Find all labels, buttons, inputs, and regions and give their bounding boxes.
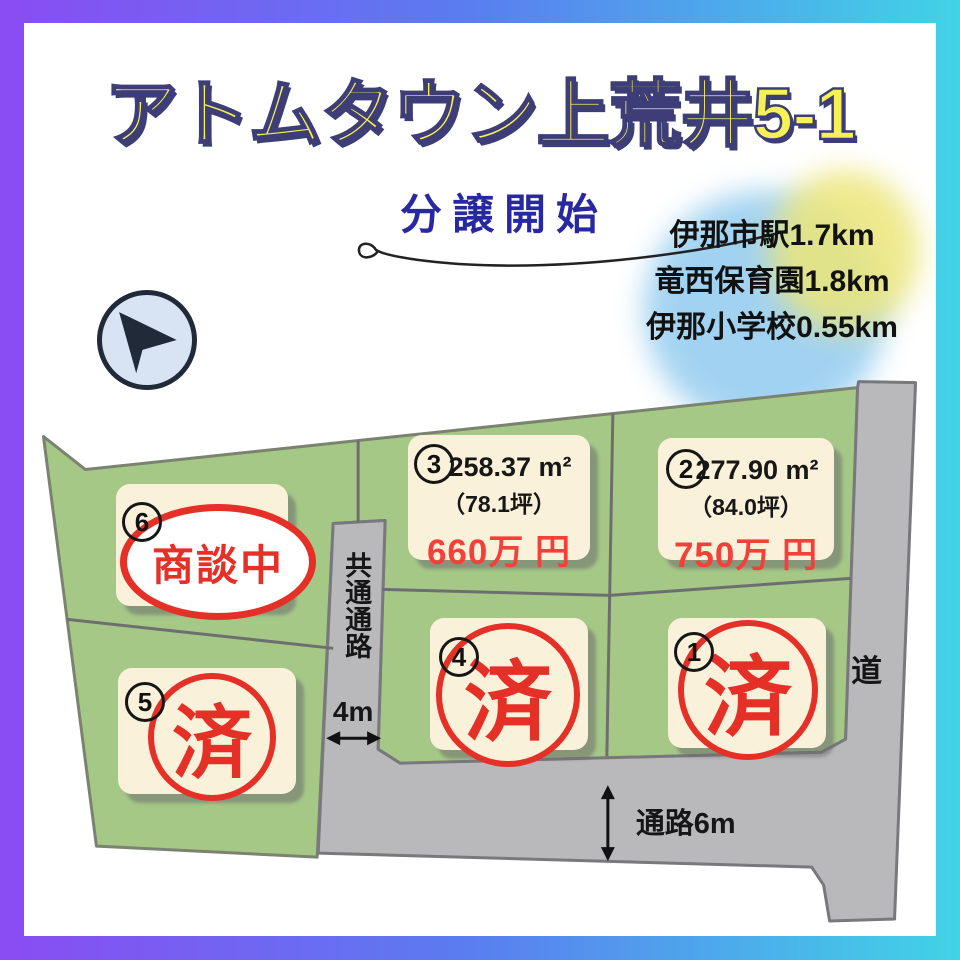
lot2-tsubo: （84.0坪） — [658, 488, 834, 522]
lot2-price: 750万 円 — [658, 527, 834, 578]
gradient-border-frame: アトムタウン上荒井5-1 分譲開始 伊那市駅1.7km 竜西保育園1.8km 伊… — [0, 0, 960, 960]
lot3-tsubo: （78.1坪） — [408, 485, 590, 519]
lot-number-6: 6 — [122, 502, 162, 542]
common-passage-label: 共通通路 — [341, 551, 371, 659]
road-label: 道 — [851, 653, 882, 688]
flyer-page: アトムタウン上荒井5-1 分譲開始 伊那市駅1.7km 竜西保育園1.8km 伊… — [24, 23, 936, 936]
lot-number-2: 2 — [666, 449, 706, 489]
common-passage-width-label: 4m — [333, 696, 373, 727]
lot-number-1: 1 — [674, 632, 714, 672]
landmarks-list: 伊那市駅1.7km 竜西保育園1.8km 伊那小学校0.55km — [612, 213, 932, 351]
landmark-item-nursery: 竜西保育園1.8km — [612, 259, 932, 305]
landmark-item-station: 伊那市駅1.7km — [612, 213, 932, 259]
landmark-item-school: 伊那小学校0.55km — [612, 305, 932, 351]
passage-6m-label: 通路6m — [636, 808, 736, 840]
lot-number-5: 5 — [125, 682, 165, 722]
lot3-price: 660万 円 — [408, 524, 590, 575]
lot-number-4: 4 — [439, 637, 479, 677]
lot-number-3: 3 — [414, 444, 454, 484]
sold-stamp-lot5: 済 — [148, 673, 276, 801]
